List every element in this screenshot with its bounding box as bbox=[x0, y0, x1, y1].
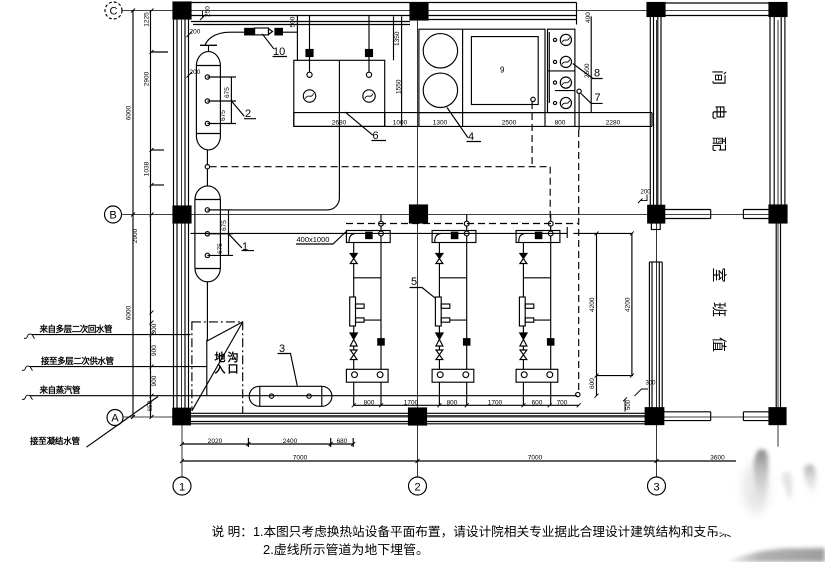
svg-text:600: 600 bbox=[532, 400, 543, 407]
svg-text:680: 680 bbox=[337, 438, 348, 445]
svg-text:900: 900 bbox=[151, 375, 158, 386]
svg-text:1000: 1000 bbox=[393, 120, 408, 127]
svg-text:2500: 2500 bbox=[584, 63, 591, 78]
svg-text:250: 250 bbox=[205, 6, 212, 17]
svg-text:接至凝结水管: 接至凝结水管 bbox=[30, 436, 80, 446]
svg-text:B: B bbox=[109, 210, 116, 222]
svg-text:7000: 7000 bbox=[293, 455, 308, 462]
svg-text:配: 配 bbox=[710, 137, 727, 152]
svg-text:800: 800 bbox=[364, 400, 375, 407]
svg-text:900: 900 bbox=[151, 345, 158, 356]
svg-text:300: 300 bbox=[151, 323, 158, 334]
svg-text:3600: 3600 bbox=[710, 455, 725, 462]
svg-text:入口: 入口 bbox=[215, 363, 239, 376]
svg-text:2020: 2020 bbox=[208, 438, 223, 445]
svg-text:1300: 1300 bbox=[433, 120, 448, 127]
svg-text:1: 1 bbox=[242, 241, 248, 253]
svg-text:间: 间 bbox=[710, 70, 727, 85]
svg-text:300: 300 bbox=[646, 381, 657, 387]
svg-text:4200: 4200 bbox=[589, 297, 596, 312]
svg-text:值: 值 bbox=[710, 337, 727, 352]
svg-text:2.虚线所示管道为地下埋管。: 2.虚线所示管道为地下埋管。 bbox=[263, 542, 429, 557]
svg-text:6000: 6000 bbox=[126, 105, 133, 120]
svg-text:675: 675 bbox=[224, 87, 231, 98]
svg-text:2500: 2500 bbox=[502, 120, 517, 127]
svg-text:700: 700 bbox=[557, 400, 568, 407]
svg-text:说 明：1.本图只考虑换热站设备平面布置，请设计院相关专业: 说 明：1.本图只考虑换热站设备平面布置，请设计院相关专业据此合理设计建筑结构和… bbox=[212, 524, 732, 539]
svg-text:7000: 7000 bbox=[528, 455, 543, 462]
svg-text:电: 电 bbox=[710, 105, 727, 120]
svg-text:400: 400 bbox=[585, 12, 592, 23]
svg-text:200: 200 bbox=[641, 190, 652, 196]
svg-text:来自蒸汽管: 来自蒸汽管 bbox=[39, 385, 81, 395]
svg-text:地沟: 地沟 bbox=[215, 350, 239, 364]
svg-text:500: 500 bbox=[626, 399, 632, 410]
svg-text:1700: 1700 bbox=[488, 400, 503, 407]
svg-text:来自多层二次回水管: 来自多层二次回水管 bbox=[39, 324, 113, 334]
svg-text:675: 675 bbox=[217, 243, 224, 254]
svg-text:1: 1 bbox=[179, 482, 185, 494]
svg-text:A: A bbox=[111, 413, 119, 425]
svg-text:2900: 2900 bbox=[144, 71, 151, 86]
svg-text:8: 8 bbox=[594, 68, 600, 80]
svg-text:675: 675 bbox=[221, 220, 228, 231]
svg-text:1225: 1225 bbox=[144, 12, 151, 27]
svg-text:675: 675 bbox=[220, 110, 227, 121]
svg-text:1038: 1038 bbox=[144, 161, 151, 176]
svg-text:7: 7 bbox=[595, 92, 601, 104]
svg-text:2280: 2280 bbox=[606, 120, 621, 127]
svg-text:1350: 1350 bbox=[394, 31, 401, 46]
svg-text:800: 800 bbox=[555, 120, 566, 127]
svg-text:3: 3 bbox=[653, 482, 659, 494]
svg-text:1700: 1700 bbox=[404, 400, 419, 407]
svg-text:400x1000: 400x1000 bbox=[297, 235, 330, 244]
svg-text:2900: 2900 bbox=[132, 228, 139, 243]
svg-text:接至多层二次供水管: 接至多层二次供水管 bbox=[41, 356, 114, 366]
svg-text:800: 800 bbox=[447, 400, 458, 407]
svg-text:500: 500 bbox=[290, 16, 297, 27]
svg-text:4200: 4200 bbox=[625, 297, 632, 312]
svg-text:2400: 2400 bbox=[283, 438, 298, 445]
svg-text:650: 650 bbox=[147, 400, 154, 411]
svg-text:2: 2 bbox=[414, 482, 420, 494]
svg-text:5: 5 bbox=[411, 276, 417, 288]
svg-text:6000: 6000 bbox=[126, 305, 133, 320]
svg-text:600: 600 bbox=[589, 378, 596, 389]
svg-text:班: 班 bbox=[710, 302, 727, 317]
svg-text:1550: 1550 bbox=[396, 79, 403, 94]
svg-text:C: C bbox=[110, 6, 118, 18]
svg-text:室: 室 bbox=[710, 268, 727, 283]
svg-text:2680: 2680 bbox=[332, 120, 347, 127]
svg-text:9: 9 bbox=[500, 66, 505, 75]
